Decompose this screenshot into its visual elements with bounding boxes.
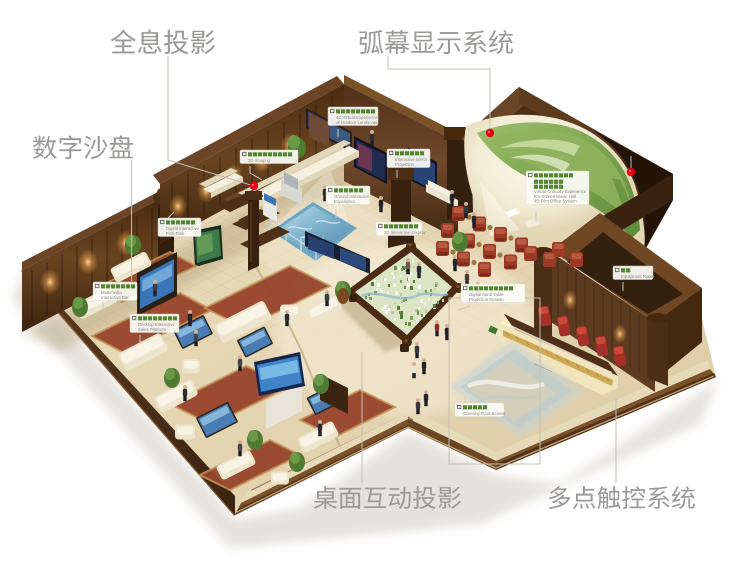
svg-text:Greeting Floor Screen: Greeting Floor Screen (463, 411, 506, 416)
svg-text:Equipment Room: Equipment Room (621, 274, 655, 279)
svg-text:Projection System: Projection System (469, 297, 504, 302)
svg-text:Fish Tank: Fish Tank (166, 231, 185, 236)
svg-text:Experience: Experience (334, 199, 356, 204)
svg-text:3D Imaging: 3D Imaging (248, 158, 271, 163)
svg-text:3D Interactive Display: 3D Interactive Display (384, 230, 427, 235)
svg-text:of Outdoor Landscape: of Outdoor Landscape (336, 120, 379, 125)
svg-text:Interactive Bar: Interactive Bar (101, 295, 129, 300)
svg-text:Projection: Projection (395, 162, 415, 167)
svg-text:4D Film Office System: 4D Film Office System (534, 199, 577, 204)
svg-text:Sales Platform: Sales Platform (138, 327, 166, 332)
